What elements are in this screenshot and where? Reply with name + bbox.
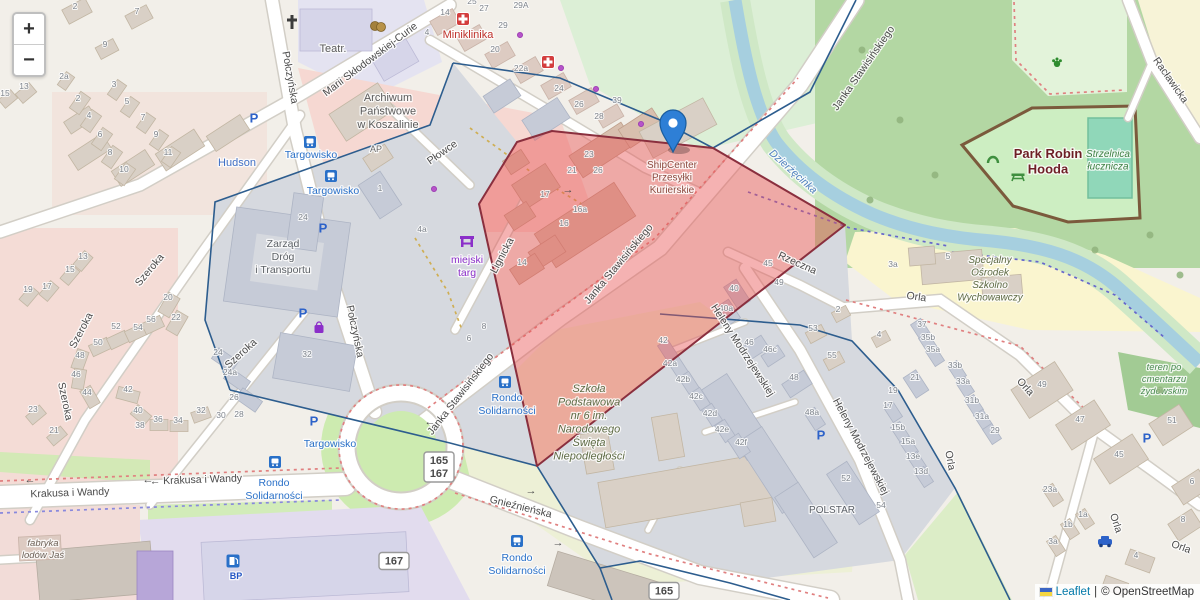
house-number: 32 — [302, 349, 312, 359]
house-number: 21 — [910, 372, 920, 382]
house-number: 8 — [482, 321, 487, 331]
svg-text:P: P — [319, 221, 328, 236]
house-number: 32 — [196, 405, 206, 415]
house-number: 45 — [763, 258, 773, 268]
place-label: Hudson — [218, 157, 256, 169]
house-number: 2 — [76, 93, 81, 103]
arrow-left-icon: ← — [143, 474, 154, 486]
house-number: 42 — [658, 335, 668, 345]
house-number: 30 — [216, 410, 226, 420]
house-number: 42d — [703, 408, 717, 418]
svg-text:←: ← — [425, 416, 436, 428]
building — [908, 246, 935, 266]
house-number: 49 — [1037, 379, 1047, 389]
place-label: teren pocmentarzużydowskim — [1140, 362, 1188, 397]
house-number: 26 — [229, 392, 239, 402]
place-label: Targowisko — [304, 438, 357, 450]
svg-text:←: ← — [25, 474, 36, 486]
house-number: 50 — [93, 337, 103, 347]
tree-icon — [1157, 387, 1164, 394]
house-number: 42b — [676, 374, 690, 384]
house-number: 48a — [805, 407, 819, 417]
house-number: 15 — [0, 88, 10, 98]
house-number: 29A — [513, 0, 528, 10]
building — [137, 551, 173, 600]
house-number: 23 — [584, 149, 594, 159]
house-number: 22 — [171, 312, 181, 322]
svg-text:←: ← — [143, 474, 154, 486]
house-number: 23a — [1043, 484, 1057, 494]
house-number: 2 — [836, 304, 841, 314]
arrow-right-icon: → — [553, 537, 564, 549]
house-number: 7 — [135, 6, 140, 16]
house-number: 55 — [827, 350, 837, 360]
place-label: Miniklinika — [443, 29, 495, 41]
house-number: 15b — [891, 422, 905, 432]
poi-dot-icon — [431, 186, 436, 191]
house-number: 49 — [774, 277, 784, 287]
svg-text:P: P — [250, 111, 259, 126]
fuel-icon — [227, 555, 240, 568]
svg-text:→: → — [526, 485, 537, 497]
house-number: 1a — [1078, 509, 1088, 519]
bus-stop-icon — [511, 535, 523, 547]
svg-text:→: → — [553, 537, 564, 549]
house-number: 5 — [946, 251, 951, 261]
map-canvas[interactable]: 2792a131535791124681025272929A1442022a24… — [0, 0, 1200, 600]
house-number: 6 — [98, 129, 103, 139]
zoom-in-button[interactable]: + — [14, 14, 44, 44]
house-number: 26 — [593, 165, 603, 175]
house-number: 22a — [514, 63, 528, 73]
tree-icon — [867, 197, 874, 204]
house-number: 35b — [921, 332, 935, 342]
house-number: 42a — [663, 358, 677, 368]
house-number: 28 — [234, 409, 244, 419]
house-number: 3 — [112, 79, 117, 89]
house-number: 14 — [440, 7, 450, 17]
medical-icon — [542, 56, 555, 69]
house-number: 14 — [517, 257, 527, 267]
house-number: 48 — [75, 350, 85, 360]
house-number: 4 — [87, 110, 92, 120]
house-number: 37 — [917, 319, 927, 329]
house-number: 33a — [956, 376, 970, 386]
house-number: 39 — [612, 95, 622, 105]
place-label: AP — [370, 144, 382, 154]
parking-icon: P — [310, 414, 319, 429]
poi-dot-icon — [593, 86, 598, 91]
house-number: 53 — [808, 323, 818, 333]
svg-text:P: P — [1143, 431, 1152, 446]
tree-icon — [897, 117, 904, 124]
house-number: 17 — [540, 189, 550, 199]
house-number: 26 — [574, 99, 584, 109]
attribution-separator: | — [1094, 586, 1097, 598]
svg-text:167: 167 — [430, 468, 448, 480]
house-number: 52 — [111, 321, 121, 331]
place-label: Strzelnicałucznicza — [1086, 149, 1130, 173]
bus-stop-icon — [304, 136, 316, 148]
leaflet-attribution-link[interactable]: Leaflet — [1056, 586, 1091, 598]
map-svg: 2792a131535791124681025272929A1442022a24… — [0, 0, 1200, 600]
arrow-left-icon: ← — [425, 416, 436, 428]
house-number: 3a — [888, 259, 898, 269]
house-number: 38 — [135, 420, 145, 430]
parking-icon: P — [299, 306, 308, 321]
house-number: 54 — [133, 322, 143, 332]
house-number: 51 — [1167, 415, 1177, 425]
house-number: 17 — [42, 281, 52, 291]
place-label: Targowisko — [307, 185, 360, 197]
house-number: 9 — [103, 39, 108, 49]
house-number: 11 — [164, 147, 173, 157]
ukraine-flag-icon — [1040, 588, 1052, 596]
marker-dot — [668, 118, 677, 127]
house-number: 9 — [154, 129, 159, 139]
house-number: 13 — [19, 81, 29, 91]
house-number: 46c — [763, 344, 777, 354]
house-number: 34 — [173, 415, 183, 425]
house-number: 42c — [689, 391, 703, 401]
house-number: 16a — [573, 204, 587, 214]
house-number: 6 — [1190, 476, 1195, 486]
house-number: 19 — [23, 284, 33, 294]
house-number: 13e — [906, 451, 920, 461]
house-number: 6 — [467, 333, 472, 343]
zoom-control: + − — [12, 12, 46, 77]
house-number: 13d — [914, 466, 928, 476]
house-number: 27 — [479, 3, 489, 13]
house-number: 31a — [975, 411, 989, 421]
house-number: 20 — [490, 44, 500, 54]
route-badge: 165167 — [424, 452, 454, 482]
svg-text:→: → — [563, 184, 574, 196]
house-number: 15a — [901, 436, 915, 446]
house-number: 7 — [141, 112, 146, 122]
marker-title-label: ShipCenterPrzesyłkiKurierskie — [647, 160, 698, 196]
tree-icon — [932, 172, 939, 179]
place-label: POLSTAR — [809, 505, 855, 516]
route-badge: 167 — [379, 553, 409, 570]
place-label: fabrykalodów Jaś — [22, 538, 64, 561]
tree-icon — [859, 47, 866, 54]
house-number: 48 — [789, 372, 799, 382]
house-number: 40 — [729, 283, 739, 293]
house-number: 29 — [498, 20, 508, 30]
route-badge: 165 — [649, 583, 679, 600]
arrow-right-icon: → — [526, 485, 537, 497]
house-number: 1b — [1063, 519, 1073, 529]
house-number: 33b — [948, 360, 962, 370]
tree-icon — [1092, 247, 1099, 254]
house-number: 24 — [554, 83, 564, 93]
house-number: 4 — [1134, 550, 1139, 560]
house-number: 44 — [82, 387, 92, 397]
house-number: 5 — [125, 96, 130, 106]
house-number: 2a — [59, 71, 69, 81]
svg-text:165: 165 — [430, 455, 448, 467]
tree-icon — [1177, 272, 1184, 279]
house-number: 36 — [153, 414, 163, 424]
house-number: 31b — [965, 395, 979, 405]
house-number: 23 — [28, 404, 38, 414]
house-number: 2 — [73, 1, 78, 11]
theater-icon — [371, 22, 386, 32]
house-number: 40 — [133, 405, 143, 415]
place-label: Targowisko — [285, 149, 338, 161]
house-number: 4 — [425, 27, 430, 37]
house-number: 1 — [378, 183, 383, 193]
attribution-bar: Leaflet | © OpenStreetMap — [1035, 584, 1200, 600]
house-number: 45 — [1114, 449, 1124, 459]
house-number: 47 — [1075, 414, 1085, 424]
house-number: 15 — [65, 264, 75, 274]
house-number: 35a — [926, 344, 940, 354]
house-number: 24 — [213, 347, 223, 357]
poi-dot-icon — [517, 32, 522, 37]
house-number: 28 — [594, 111, 604, 121]
svg-text:P: P — [310, 414, 319, 429]
house-number: 42 — [123, 384, 133, 394]
bus-stop-icon — [325, 170, 337, 182]
house-number: 16 — [559, 218, 569, 228]
svg-text:167: 167 — [385, 556, 403, 568]
house-number: 13 — [78, 251, 88, 261]
house-number: 54 — [876, 500, 886, 510]
house-number: 25 — [467, 0, 477, 6]
place-label: BP — [230, 571, 243, 581]
house-number: 42e — [715, 424, 729, 434]
house-number: 29 — [990, 425, 1000, 435]
house-number: 20 — [163, 292, 173, 302]
house-number: 4a — [417, 224, 427, 234]
house-number: 52 — [841, 473, 851, 483]
svg-text:165: 165 — [655, 586, 673, 598]
parking-icon: P — [817, 428, 826, 443]
parking-icon: P — [250, 111, 259, 126]
house-number: 21 — [567, 165, 577, 175]
house-number: 17 — [883, 400, 893, 410]
arrow-left-icon: ← — [25, 474, 36, 486]
poi-dot-icon — [638, 121, 643, 126]
house-number: 3a — [1048, 536, 1058, 546]
poi-dot-icon — [558, 65, 563, 70]
house-number: 56 — [146, 314, 156, 324]
house-number: 8 — [1181, 514, 1186, 524]
house-number: 10 — [119, 164, 129, 174]
house-number: 8 — [108, 147, 113, 157]
house-number: 24 — [298, 212, 308, 222]
medical-icon — [457, 13, 470, 26]
parking-icon: P — [1143, 431, 1152, 446]
place-label: ArchiwumPaństwowew Koszalinie — [356, 92, 418, 131]
osm-attribution: © OpenStreetMap — [1101, 586, 1194, 598]
house-number: 4 — [877, 329, 882, 339]
svg-text:P: P — [299, 306, 308, 321]
bus-stop-icon — [269, 456, 281, 468]
place-label: Teatr. — [320, 43, 347, 55]
zoom-out-button[interactable]: − — [14, 45, 44, 75]
parking-icon: P — [319, 221, 328, 236]
house-number: 42f — [735, 437, 747, 447]
bus-stop-icon — [499, 376, 511, 388]
tree-icon — [1147, 232, 1154, 239]
house-number: 46 — [71, 369, 81, 379]
house-number: 19 — [888, 385, 898, 395]
arrow-right-icon: → — [563, 184, 574, 196]
building — [740, 497, 776, 526]
house-number: 21 — [49, 425, 59, 435]
svg-text:P: P — [817, 428, 826, 443]
